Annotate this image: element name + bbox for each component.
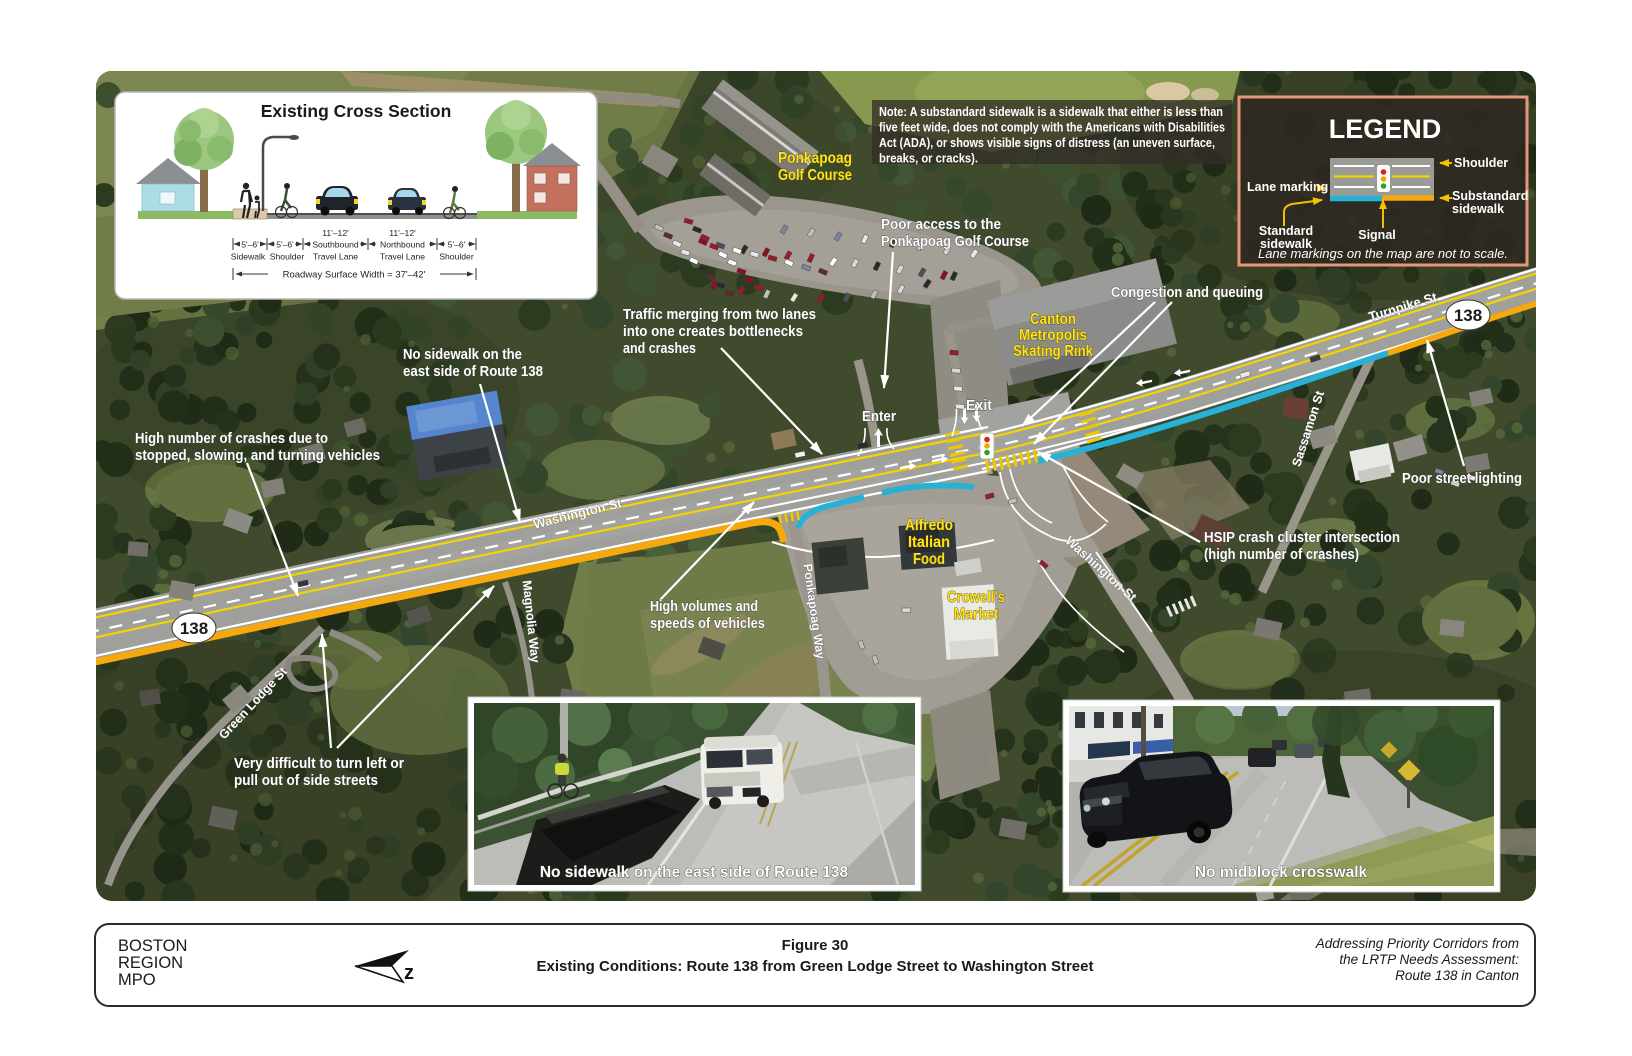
- svg-text:Lane marking: Lane marking: [1247, 180, 1328, 194]
- svg-text:sidewalk: sidewalk: [1452, 202, 1504, 216]
- svg-text:LEGEND: LEGEND: [1329, 114, 1442, 144]
- svg-text:BOSTON: BOSTON: [118, 937, 187, 955]
- svg-text:11'–12': 11'–12': [322, 228, 349, 238]
- svg-text:No sidewalk on the: No sidewalk on the: [403, 346, 522, 363]
- svg-text:Skating Rink: Skating Rink: [1013, 343, 1093, 360]
- svg-text:Congestion and queuing: Congestion and queuing: [1111, 284, 1263, 301]
- svg-text:Northbound: Northbound: [380, 240, 425, 250]
- svg-text:into one creates bottlenecks: into one creates bottlenecks: [623, 323, 803, 340]
- svg-text:HSIP crash cluster intersectio: HSIP crash cluster intersection: [1204, 529, 1400, 546]
- svg-text:Substandard: Substandard: [1452, 189, 1528, 203]
- svg-text:Note: A substandard sidewalk i: Note: A substandard sidewalk is a sidewa…: [879, 104, 1223, 119]
- svg-text:Ponkapoag: Ponkapoag: [778, 150, 852, 167]
- svg-text:Southbound: Southbound: [312, 240, 359, 250]
- svg-text:Lane markings on the map are n: Lane markings on the map are not to scal…: [1258, 246, 1508, 261]
- svg-text:Roadway Surface Width = 37'–42: Roadway Surface Width = 37'–42': [283, 270, 426, 281]
- svg-text:Act (ADA), or shows visible si: Act (ADA), or shows visible signs of dis…: [879, 135, 1215, 150]
- svg-text:11'–12': 11'–12': [389, 228, 416, 238]
- svg-text:Travel Lane: Travel Lane: [313, 252, 358, 262]
- svg-text:Market: Market: [954, 606, 999, 623]
- svg-text:High number of crashes due to: High number of crashes due to: [135, 430, 328, 447]
- svg-text:Figure 30: Figure 30: [782, 937, 849, 954]
- svg-text:pull out of side streets: pull out of side streets: [234, 772, 378, 789]
- svg-text:MPO: MPO: [118, 971, 156, 989]
- svg-text:the LRTP Needs Assessment:: the LRTP Needs Assessment:: [1339, 952, 1519, 967]
- svg-text:Poor street lighting: Poor street lighting: [1402, 470, 1522, 487]
- svg-text:Canton: Canton: [1030, 311, 1076, 328]
- svg-text:Italian: Italian: [908, 534, 950, 551]
- svg-text:five feet wide, does not compl: five feet wide, does not comply with the…: [879, 120, 1225, 135]
- svg-text:stopped, slowing, and turning: stopped, slowing, and turning vehicles: [135, 447, 380, 464]
- svg-text:5'–6': 5'–6': [241, 240, 259, 250]
- svg-text:Very difficult to turn left or: Very difficult to turn left or: [234, 755, 404, 772]
- svg-text:east side of Route 138: east side of Route 138: [403, 363, 543, 380]
- svg-text:(high number of crashes): (high number of crashes): [1204, 546, 1359, 563]
- svg-text:5'–6': 5'–6': [448, 240, 466, 250]
- svg-text:Ponkapoag Golf Course: Ponkapoag Golf Course: [881, 233, 1029, 250]
- svg-text:Shoulder: Shoulder: [439, 252, 474, 262]
- svg-text:Golf Course: Golf Course: [778, 167, 852, 184]
- svg-text:breaks, or cracks).: breaks, or cracks).: [879, 151, 978, 166]
- svg-text:No midblock crosswalk: No midblock crosswalk: [1195, 864, 1368, 881]
- svg-text:and crashes: and crashes: [623, 340, 696, 357]
- svg-text:138: 138: [180, 619, 208, 638]
- svg-text:REGION: REGION: [118, 954, 183, 972]
- svg-text:Signal: Signal: [1358, 228, 1396, 242]
- svg-text:Enter: Enter: [862, 408, 896, 425]
- svg-text:Existing Conditions: Route 138: Existing Conditions: Route 138 from Gree…: [537, 958, 1094, 975]
- svg-text:High volumes and: High volumes and: [650, 598, 758, 615]
- svg-text:5'–6': 5'–6': [276, 240, 294, 250]
- svg-text:Shoulder: Shoulder: [1454, 156, 1508, 170]
- svg-text:138: 138: [1454, 306, 1482, 325]
- svg-text:No sidewalk on the east side o: No sidewalk on the east side of Route 13…: [540, 864, 849, 881]
- svg-text:speeds of vehicles: speeds of vehicles: [650, 615, 765, 632]
- svg-text:z: z: [404, 962, 414, 984]
- svg-text:Food: Food: [913, 551, 945, 568]
- svg-text:Existing Cross Section: Existing Cross Section: [261, 101, 452, 121]
- svg-text:Standard: Standard: [1259, 224, 1313, 238]
- svg-text:Crowell's: Crowell's: [947, 589, 1005, 606]
- svg-text:Addressing Priority Corridors: Addressing Priority Corridors from: [1315, 936, 1519, 951]
- svg-text:Traffic merging from two lanes: Traffic merging from two lanes: [623, 306, 816, 323]
- svg-text:Route 138 in Canton: Route 138 in Canton: [1395, 968, 1519, 983]
- svg-text:Alfredo: Alfredo: [905, 517, 953, 534]
- svg-text:Shoulder: Shoulder: [270, 252, 305, 262]
- svg-text:Poor access to the: Poor access to the: [881, 216, 1001, 233]
- svg-text:Metropolis: Metropolis: [1019, 327, 1087, 344]
- svg-text:Sidewalk: Sidewalk: [231, 252, 266, 262]
- svg-text:Exit: Exit: [966, 397, 992, 414]
- svg-text:Travel Lane: Travel Lane: [380, 252, 425, 262]
